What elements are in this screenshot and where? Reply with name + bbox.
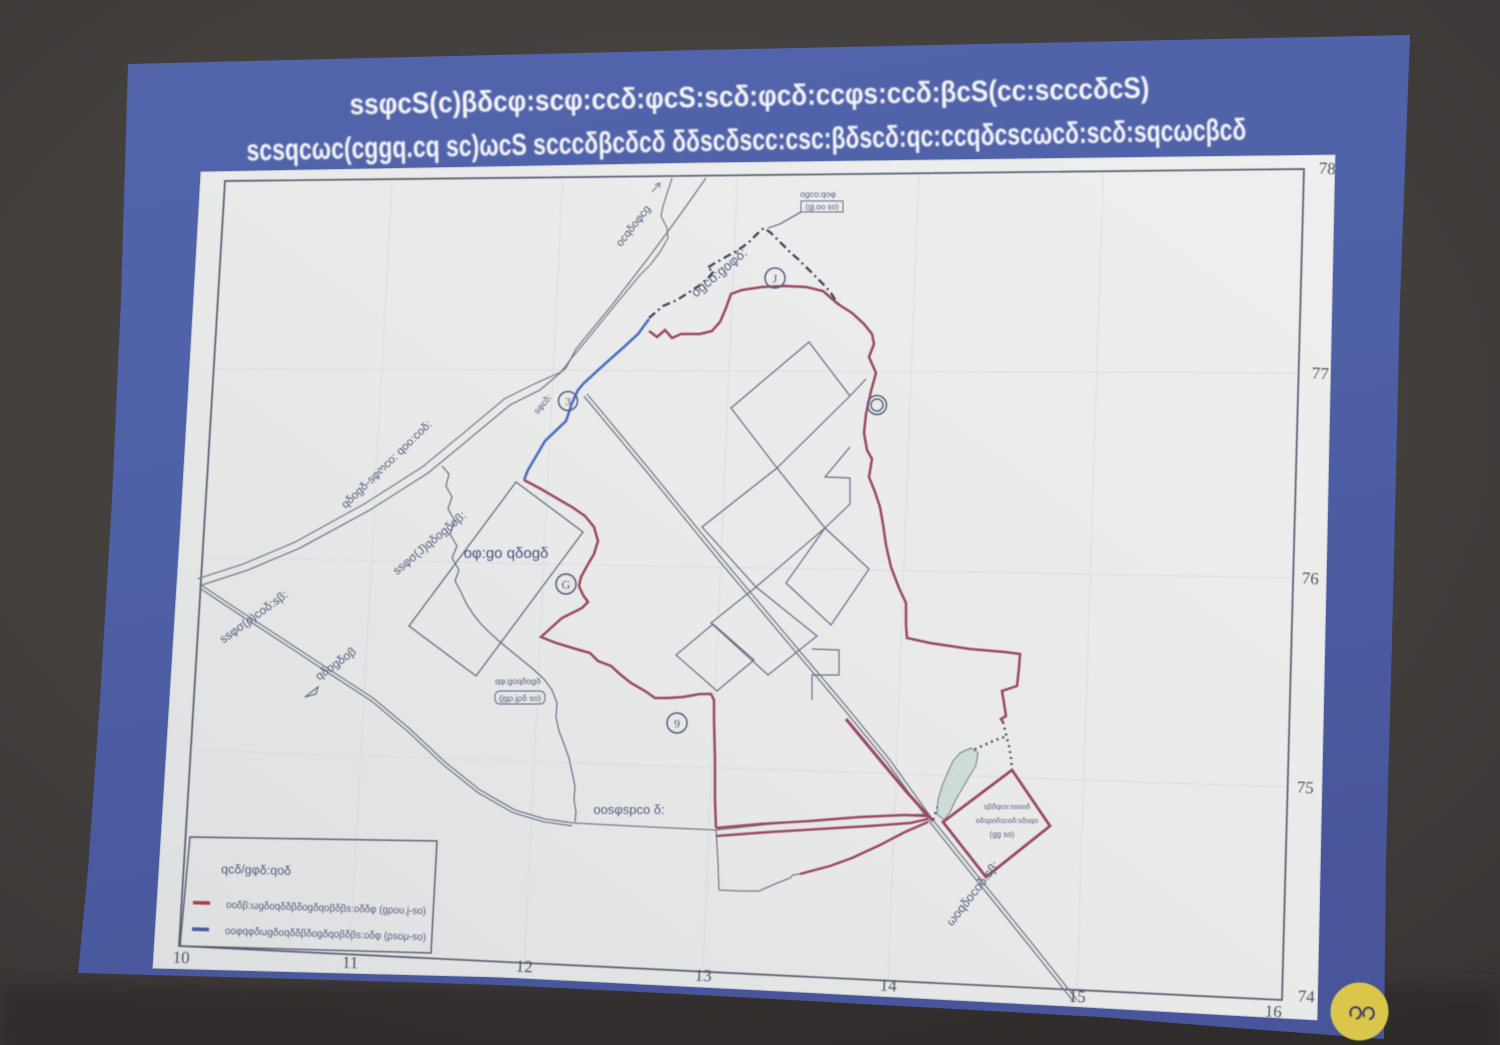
svg-text:oφ:go qδogδ: oφ:go qδogδ: [464, 545, 549, 562]
svg-text:oδspoδscoδ:sδsqo: oδspoδscoδ:sδsqo: [976, 816, 1039, 825]
svg-text:14: 14: [879, 976, 897, 996]
svg-text:15: 15: [1068, 987, 1086, 1007]
svg-text:G: G: [562, 577, 571, 591]
svg-text:10: 10: [172, 948, 190, 968]
svg-text:(gg so): (gg so): [990, 830, 1015, 839]
svg-text:sβδqco:ssooδ: sβδqco:ssooδ: [984, 802, 1030, 811]
svg-text:16: 16: [1264, 1002, 1282, 1022]
svg-text:qφ:goqδogδ: qφ:goqδogδ: [495, 676, 541, 686]
svg-text:76: 76: [1301, 569, 1319, 589]
svg-text:9: 9: [674, 716, 680, 730]
svg-text:(jgρ.jρδ so): (jgρ.jρδ so): [499, 693, 541, 703]
svg-text:13: 13: [694, 966, 712, 986]
svg-text:oosφspco δ:: oosφspco δ:: [593, 802, 664, 817]
svg-text:74: 74: [1297, 987, 1315, 1007]
svg-text:77: 77: [1311, 364, 1329, 384]
svg-text:qcδ/gφδ:qoδ: qcδ/gφδ:qoδ: [221, 862, 291, 878]
svg-text:78: 78: [1318, 159, 1336, 179]
svg-text:11: 11: [342, 953, 359, 973]
svg-text:J: J: [773, 271, 778, 285]
svg-text:12: 12: [515, 957, 533, 977]
svg-text:75: 75: [1296, 778, 1314, 798]
svg-text:3: 3: [565, 396, 571, 408]
svg-text:(gj.oo so): (gj.oo so): [805, 203, 839, 212]
svg-text:ogco:qoφ: ogco:qoφ: [800, 189, 836, 199]
